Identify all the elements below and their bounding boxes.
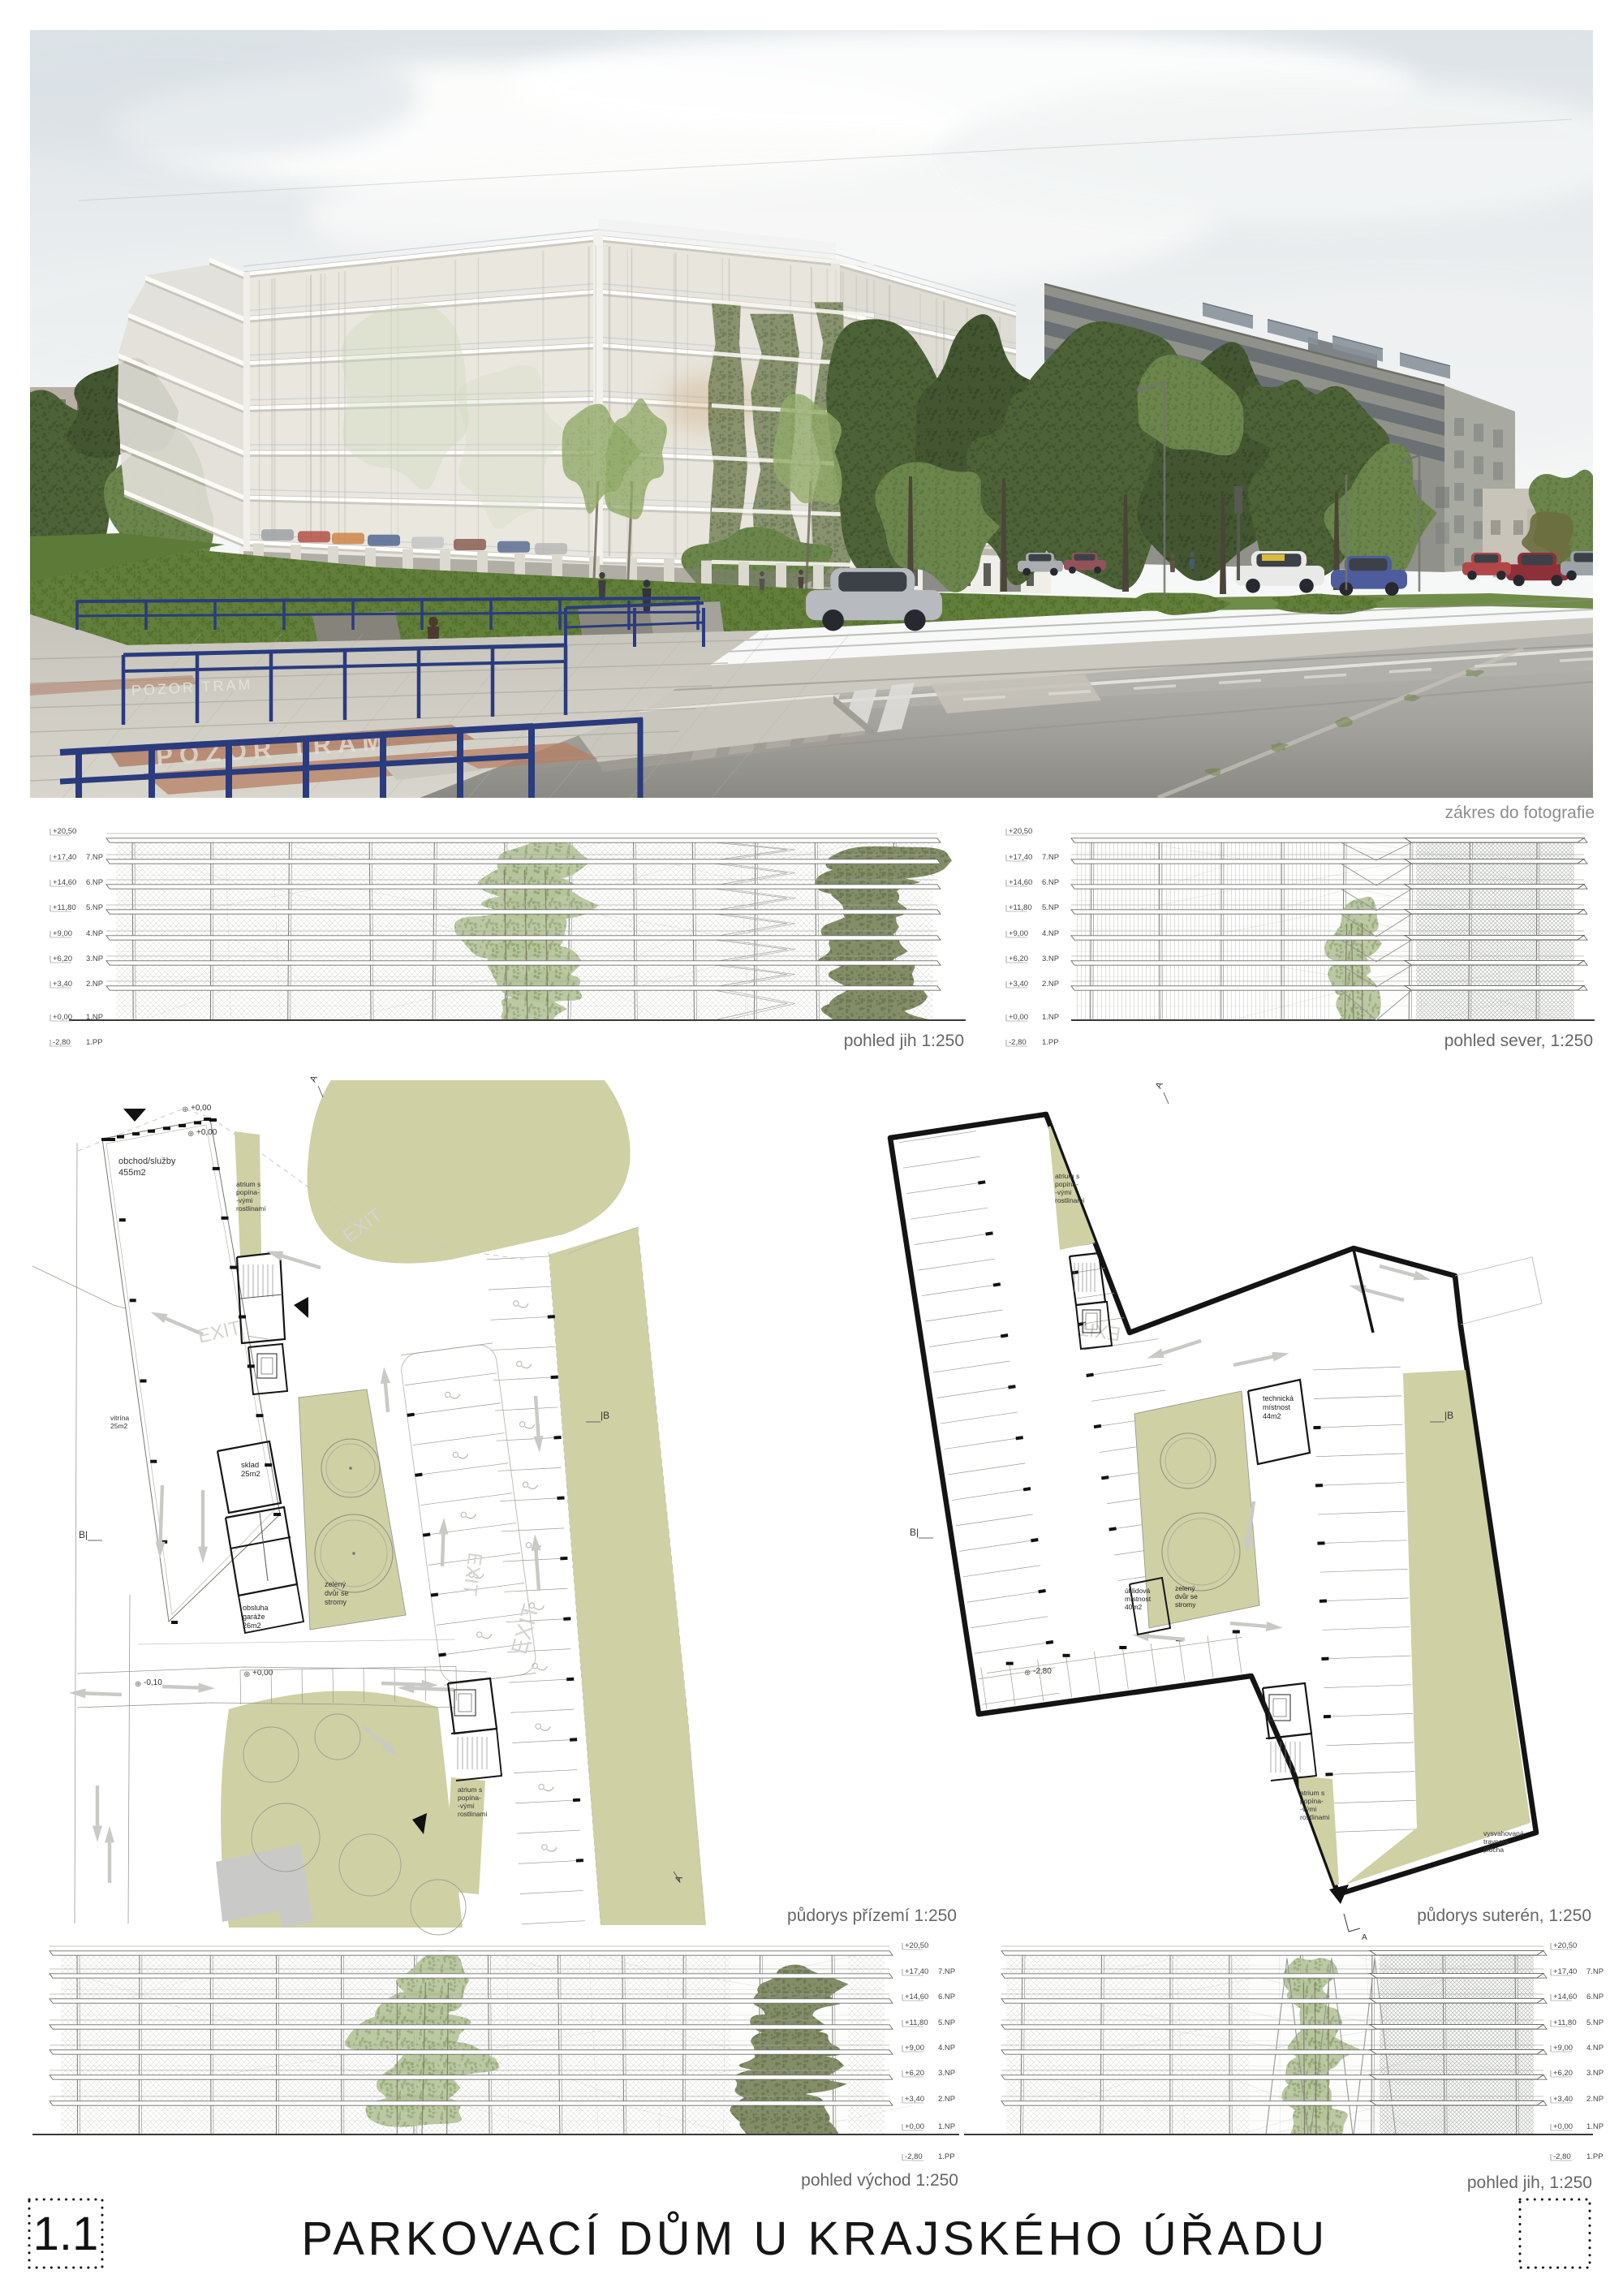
svg-text:3.NP: 3.NP [938, 2069, 955, 2078]
svg-text:-2,80: -2,80 [1553, 2152, 1571, 2161]
svg-text:5.NP: 5.NP [86, 903, 103, 912]
svg-text:+3,40: +3,40 [53, 980, 72, 989]
svg-text:atrium s: atrium s [1300, 1789, 1324, 1797]
svg-text:+14,60: +14,60 [53, 878, 76, 887]
svg-text:1.PP: 1.PP [86, 1038, 103, 1047]
svg-text:+9,00: +9,00 [905, 2044, 924, 2053]
svg-text:-vými: -vými [1055, 1188, 1071, 1196]
svg-text:vitrína: vitrína [110, 1414, 129, 1422]
svg-text:25m2: 25m2 [241, 1470, 260, 1479]
svg-text:zákres do fotografie: zákres do fotografie [1445, 803, 1595, 822]
svg-text:+6,20: +6,20 [53, 954, 72, 963]
svg-text:6.NP: 6.NP [1586, 1992, 1604, 2001]
svg-text:úklidová: úklidová [1125, 1587, 1150, 1595]
svg-text:PARKOVACÍ DŮM U KRAJSKÉHO ÚŘAD: PARKOVACÍ DŮM U KRAJSKÉHO ÚŘADU [301, 2212, 1328, 2265]
svg-text:půdorys přízemí 1:250: půdorys přízemí 1:250 [787, 1906, 957, 1925]
svg-text:popína-: popína- [1300, 1797, 1324, 1805]
svg-text:1.NP: 1.NP [86, 1013, 103, 1022]
svg-text:+11,80: +11,80 [1009, 903, 1032, 912]
svg-text:+11,80: +11,80 [53, 903, 76, 912]
svg-text:3.NP: 3.NP [1586, 2069, 1604, 2078]
svg-text:EXIT: EXIT [458, 1551, 486, 1597]
svg-text:2.NP: 2.NP [1042, 980, 1059, 989]
svg-text:pohled sever, 1:250: pohled sever, 1:250 [1444, 1032, 1593, 1050]
svg-text:rostlinami: rostlinami [236, 1204, 265, 1213]
svg-text:technická: technická [1263, 1394, 1294, 1402]
svg-text:4.NP: 4.NP [938, 2044, 955, 2053]
svg-text:atrium s: atrium s [458, 1786, 482, 1794]
svg-text:1.PP: 1.PP [1042, 1038, 1059, 1047]
svg-text:5.NP: 5.NP [1586, 2018, 1604, 2027]
svg-text:+14,60: +14,60 [905, 1992, 928, 2001]
svg-text:-2,80: -2,80 [53, 1038, 71, 1047]
svg-text:-0,10: -0,10 [144, 1678, 162, 1687]
svg-text:455m2: 455m2 [118, 1168, 146, 1178]
svg-text:pohled jih 1:250: pohled jih 1:250 [844, 1032, 964, 1050]
svg-text:+3,40: +3,40 [1553, 2095, 1573, 2104]
svg-text:+20,50: +20,50 [53, 827, 76, 836]
svg-text:dvůr se: dvůr se [325, 1589, 349, 1597]
svg-text:⊕: ⊕ [187, 1130, 194, 1139]
svg-text:7.NP: 7.NP [1042, 853, 1059, 862]
svg-text:-vými: -vými [1300, 1805, 1316, 1813]
svg-text:+3,40: +3,40 [905, 2095, 924, 2104]
svg-text:+20,50: +20,50 [1009, 827, 1032, 836]
svg-text:+6,20: +6,20 [1009, 954, 1028, 963]
svg-text:místnost: místnost [1263, 1403, 1291, 1411]
svg-text:A: A [1362, 1933, 1367, 1942]
svg-text:-vými: -vými [236, 1196, 252, 1204]
svg-text:7.NP: 7.NP [938, 1967, 955, 1976]
svg-text:-vými: -vými [458, 1802, 474, 1810]
svg-text:+11,80: +11,80 [905, 2018, 928, 2027]
svg-text:6.NP: 6.NP [86, 878, 103, 887]
svg-text:vysvahovaná: vysvahovaná [1483, 1829, 1524, 1837]
svg-text:+14,60: +14,60 [1009, 878, 1032, 887]
svg-text:+0,00: +0,00 [1553, 2122, 1573, 2131]
svg-text:1.NP: 1.NP [938, 2122, 955, 2131]
svg-text:7.NP: 7.NP [1586, 1967, 1604, 1976]
svg-text:26m2: 26m2 [243, 1622, 261, 1630]
svg-text:obsluha: obsluha [243, 1604, 269, 1612]
svg-text:atrium s: atrium s [236, 1180, 260, 1188]
svg-text:+0,00: +0,00 [196, 1128, 217, 1137]
svg-text:5.NP: 5.NP [938, 2018, 955, 2027]
svg-text:+0,00: +0,00 [1009, 1013, 1028, 1022]
svg-text:5.NP: 5.NP [1042, 903, 1059, 912]
svg-text:4.NP: 4.NP [1586, 2044, 1604, 2053]
svg-text:stromy: stromy [325, 1598, 347, 1606]
svg-text:rostlinami: rostlinami [1300, 1813, 1329, 1821]
svg-text:sklad: sklad [241, 1461, 259, 1470]
svg-text:4.NP: 4.NP [86, 929, 103, 938]
svg-text:pohled východ 1:250: pohled východ 1:250 [801, 2171, 958, 2190]
svg-text:+0,00: +0,00 [53, 1013, 72, 1022]
svg-text:+17,40: +17,40 [1009, 853, 1032, 862]
svg-text:2.NP: 2.NP [1586, 2095, 1604, 2104]
svg-text:6.NP: 6.NP [938, 1992, 955, 2001]
svg-text:atrium s: atrium s [1055, 1172, 1079, 1180]
svg-text:44m2: 44m2 [1263, 1412, 1281, 1420]
svg-text:zelený: zelený [1175, 1584, 1195, 1592]
svg-text:+9,00: +9,00 [53, 929, 72, 938]
svg-text:+17,40: +17,40 [1553, 1967, 1577, 1976]
svg-text:plocha: plocha [1483, 1846, 1504, 1854]
svg-text:stromy: stromy [1175, 1600, 1196, 1609]
svg-text:4.NP: 4.NP [1042, 929, 1059, 938]
svg-text:pohled jih, 1:250: pohled jih, 1:250 [1467, 2173, 1592, 2192]
svg-text:travnatá: travnatá [1483, 1837, 1509, 1846]
svg-text:+0,00: +0,00 [905, 2122, 924, 2131]
svg-text:A: A [1154, 1080, 1165, 1090]
svg-text:místnost: místnost [1125, 1595, 1152, 1603]
svg-text:garáže: garáže [243, 1613, 265, 1621]
svg-text:+6,20: +6,20 [905, 2069, 924, 2078]
svg-text:rostlinami: rostlinami [1055, 1196, 1084, 1204]
svg-text:+17,40: +17,40 [53, 853, 76, 862]
svg-text:+9,00: +9,00 [1553, 2044, 1573, 2053]
svg-text:⊕: ⊕ [1024, 1669, 1031, 1678]
svg-text:popína-: popína- [458, 1794, 481, 1802]
svg-text:7.NP: 7.NP [86, 853, 103, 862]
svg-text:1.1: 1.1 [33, 2208, 99, 2260]
svg-text:popína-: popína- [236, 1188, 260, 1196]
svg-text:+6,20: +6,20 [1553, 2069, 1573, 2078]
svg-text:40m2: 40m2 [1125, 1603, 1143, 1611]
svg-text:1.PP: 1.PP [1586, 2152, 1604, 2161]
svg-text:+3,40: +3,40 [1009, 980, 1028, 989]
svg-text:zelený: zelený [325, 1580, 347, 1588]
svg-text:⊕: ⊕ [135, 1680, 141, 1689]
svg-text:+9,00: +9,00 [1009, 929, 1028, 938]
svg-text:B|: B| [910, 1527, 919, 1538]
svg-text:+20,50: +20,50 [905, 1941, 928, 1950]
svg-text:půdorys suterén, 1:250: půdorys suterén, 1:250 [1417, 1906, 1591, 1925]
svg-text:|B: |B [1444, 1410, 1453, 1421]
svg-text:2.NP: 2.NP [86, 980, 103, 989]
svg-text:+0,00: +0,00 [191, 1104, 212, 1113]
svg-text:⊕: ⊕ [243, 1670, 250, 1679]
svg-text:B|: B| [79, 1529, 88, 1540]
svg-text:popína-: popína- [1055, 1180, 1078, 1188]
svg-text:1.NP: 1.NP [1586, 2122, 1604, 2131]
svg-text:rostlinami: rostlinami [458, 1810, 487, 1818]
svg-text:|B: |B [601, 1410, 609, 1421]
svg-text:3.NP: 3.NP [1042, 954, 1059, 963]
svg-text:dvůr se: dvůr se [1175, 1592, 1198, 1600]
svg-text:A: A [308, 1074, 320, 1083]
svg-text:6.NP: 6.NP [1042, 878, 1059, 887]
svg-text:+11,80: +11,80 [1553, 2018, 1577, 2027]
svg-text:-2,80: -2,80 [1033, 1667, 1052, 1676]
svg-text:-2,80: -2,80 [905, 2152, 923, 2161]
svg-text:⊕: ⊕ [182, 1105, 188, 1114]
svg-text:25m2: 25m2 [110, 1422, 128, 1430]
svg-text:2.NP: 2.NP [938, 2095, 955, 2104]
svg-text:-2,80: -2,80 [1009, 1038, 1027, 1047]
svg-text:1.PP: 1.PP [938, 2152, 955, 2161]
svg-text:+17,40: +17,40 [905, 1967, 928, 1976]
svg-text:1.NP: 1.NP [1042, 1013, 1059, 1022]
svg-text:+14,60: +14,60 [1553, 1992, 1577, 2001]
svg-text:3.NP: 3.NP [86, 954, 103, 963]
svg-text:obchod/služby: obchod/služby [118, 1157, 176, 1166]
svg-text:+20,50: +20,50 [1553, 1941, 1577, 1950]
